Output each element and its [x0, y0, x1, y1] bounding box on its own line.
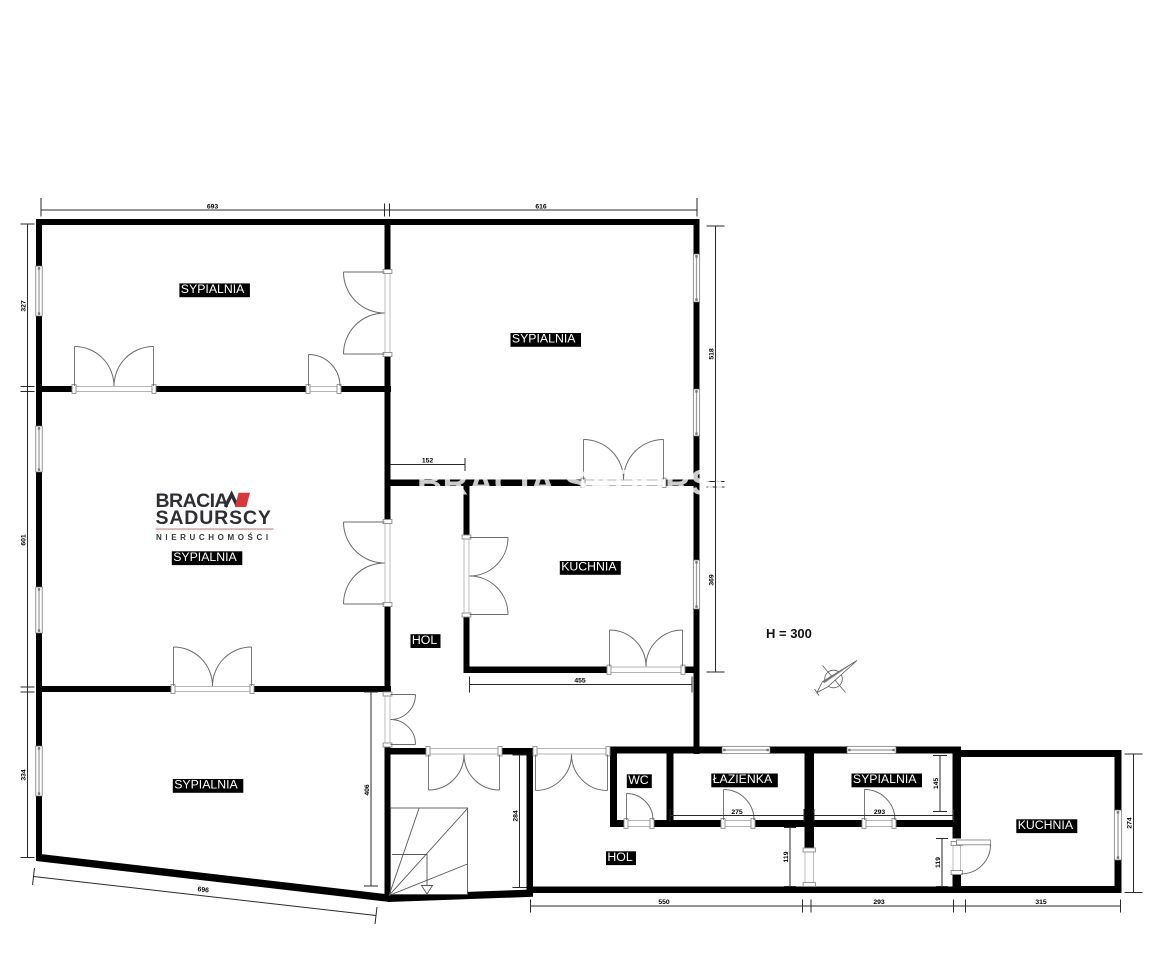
svg-text:518: 518 [709, 348, 716, 360]
svg-text:293: 293 [874, 809, 886, 816]
svg-text:696: 696 [197, 886, 209, 894]
svg-text:WC: WC [628, 773, 649, 787]
svg-text:SYPIALNIA: SYPIALNIA [853, 772, 917, 786]
svg-text:274: 274 [1127, 817, 1134, 829]
svg-text:NIERUCHOMOŚCI: NIERUCHOMOŚCI [156, 533, 272, 542]
svg-text:HOL: HOL [412, 633, 437, 647]
svg-text:275: 275 [731, 809, 743, 816]
svg-text:550: 550 [658, 899, 670, 906]
svg-text:145: 145 [933, 778, 940, 790]
svg-text:SADURSCY: SADURSCY [156, 507, 272, 529]
svg-text:455: 455 [574, 678, 586, 685]
svg-text:284: 284 [513, 810, 520, 822]
svg-text:119: 119 [935, 857, 942, 868]
svg-text:693: 693 [207, 203, 219, 210]
svg-text:327: 327 [21, 300, 28, 312]
svg-text:KUCHNIA: KUCHNIA [561, 560, 617, 574]
svg-text:369: 369 [709, 574, 716, 586]
svg-text:KUCHNIA: KUCHNIA [1018, 818, 1074, 832]
svg-text:119: 119 [783, 851, 790, 862]
svg-text:601: 601 [21, 534, 28, 546]
svg-text:BRACIA SADURSCY: BRACIA SADURSCY [417, 464, 764, 503]
svg-text:ŁAZIENKA: ŁAZIENKA [713, 772, 773, 786]
svg-text:334: 334 [21, 769, 28, 781]
svg-text:HOL: HOL [607, 850, 632, 864]
svg-text:406: 406 [364, 784, 371, 796]
svg-text:H = 300: H = 300 [766, 626, 812, 641]
svg-text:616: 616 [535, 203, 547, 210]
svg-text:SYPIALNIA: SYPIALNIA [173, 550, 237, 564]
svg-text:SYPIALNIA: SYPIALNIA [512, 332, 576, 346]
svg-text:293: 293 [873, 899, 885, 906]
svg-text:SYPIALNIA: SYPIALNIA [174, 778, 238, 792]
svg-text:SYPIALNIA: SYPIALNIA [181, 282, 245, 296]
svg-text:315: 315 [1035, 899, 1047, 906]
